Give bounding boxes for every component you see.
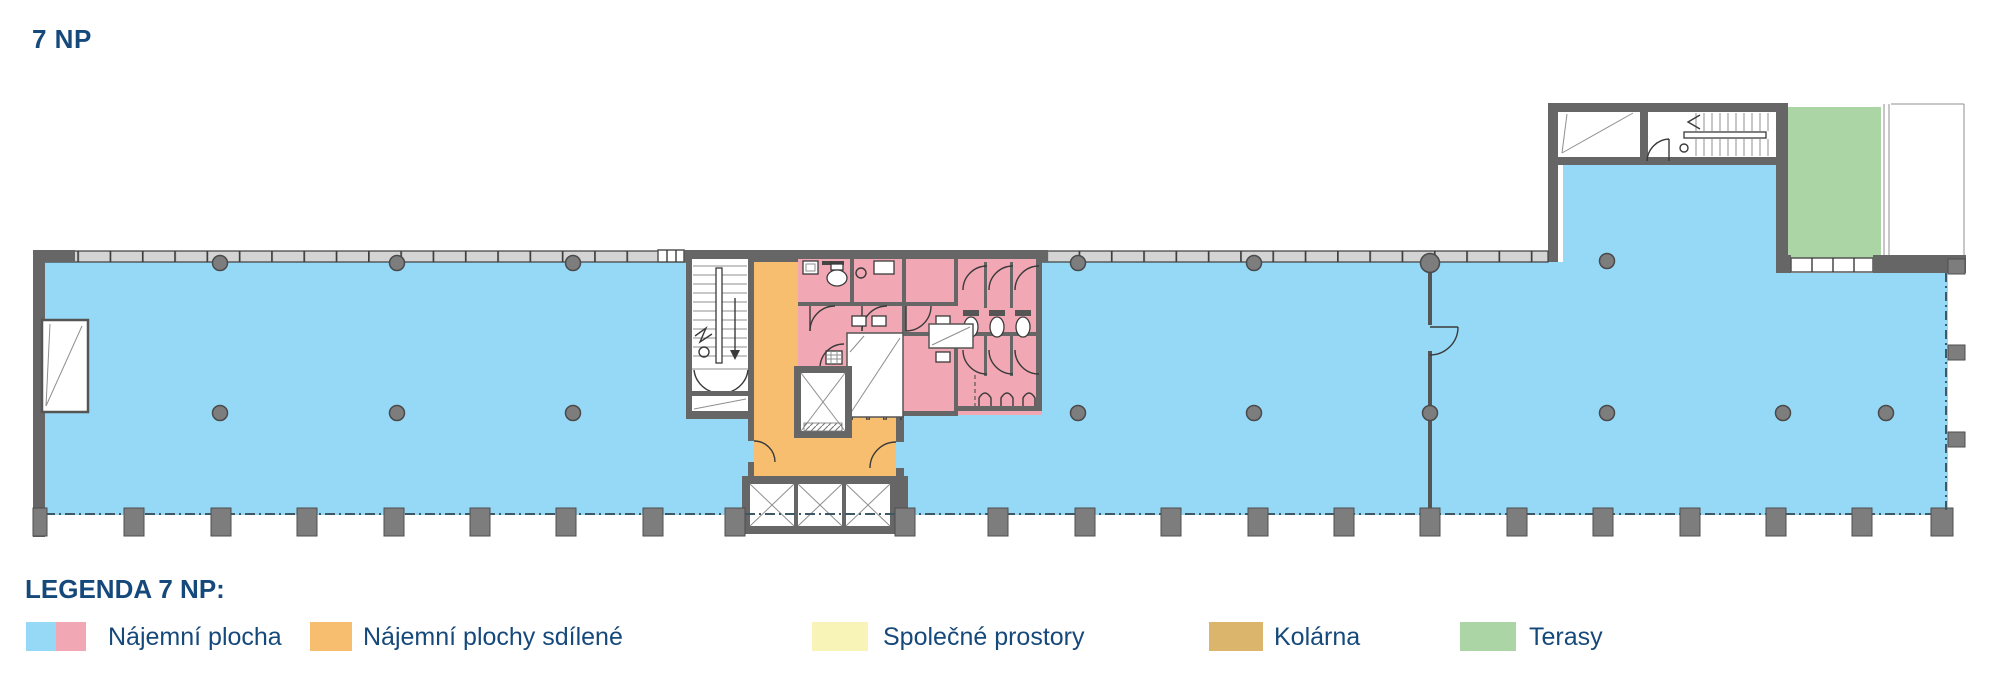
color-swatch-bike-room	[1209, 622, 1263, 651]
facade-window-gap	[658, 250, 684, 262]
color-swatch-rental-blue	[26, 622, 56, 651]
terrace-area	[1788, 107, 1881, 260]
color-swatch-terraces	[1460, 622, 1516, 651]
east-facade	[1946, 259, 1965, 512]
floor-plan-page: 7 NP	[0, 0, 2000, 698]
legend-label: Společné prostory	[883, 623, 1085, 652]
color-swatch-rental-pink	[56, 622, 86, 651]
stairwell-northeast	[1647, 112, 1776, 161]
service-elevator	[794, 366, 852, 438]
terrace-glazing	[1781, 255, 1966, 273]
legend-label: Terasy	[1529, 623, 1603, 652]
bay-window-west	[42, 320, 88, 412]
roof-outline	[1884, 104, 1964, 260]
legend-title: LEGENDA 7 NP:	[25, 574, 225, 605]
legend-label: Nájemní plocha	[108, 623, 282, 652]
north-facade-wall	[33, 250, 1548, 262]
legend-label: Nájemní plochy sdílené	[363, 623, 623, 652]
color-swatch-shared	[310, 622, 352, 651]
stairwell-west	[686, 252, 754, 419]
floor-plan-drawing	[0, 0, 2000, 570]
elevator-bank	[742, 476, 908, 534]
skylight-room	[1558, 112, 1640, 157]
color-swatch-common	[812, 622, 868, 651]
legend-label: Kolárna	[1274, 623, 1360, 652]
